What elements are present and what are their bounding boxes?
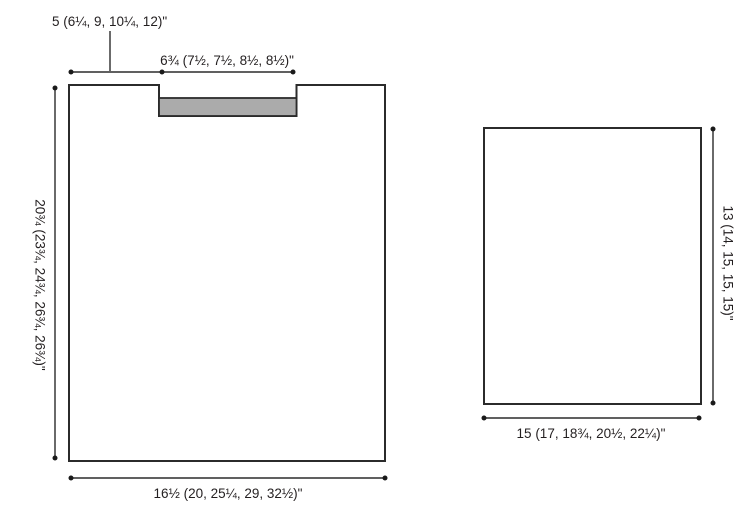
left-dim-dot-top [53, 86, 58, 91]
shoulder-width-label: 5 (6¼, 9, 10¼, 12)" [52, 14, 167, 29]
body-width-dot-right [383, 476, 388, 481]
neck-width-label: 6¾ (7½, 7½, 8½, 8½)" [160, 53, 294, 68]
left-piece-outline [69, 85, 385, 461]
sleeve-width-dot-right [697, 416, 702, 421]
neckband-bar [159, 98, 297, 116]
sleeve-length-label: 13 (14, 15, 15, 15)" [720, 205, 735, 320]
sleeve-width-label: 15 (17, 18¾, 20½, 22¼)" [517, 426, 666, 441]
left-piece: 5 (6¼, 9, 10¼, 12)" 6¾ (7½, 7½, 8½, 8½)"… [32, 14, 387, 501]
left-dim-dot-bottom [53, 456, 58, 461]
right-dim-dot-bottom [711, 401, 716, 406]
top-dim-dot-middle [160, 70, 165, 75]
pattern-schematic: 5 (6¼, 9, 10¼, 12)" 6¾ (7½, 7½, 8½, 8½)"… [0, 0, 752, 522]
body-width-dot-left [69, 476, 74, 481]
top-dim-dot-left [69, 70, 74, 75]
sleeve-width-dot-left [482, 416, 487, 421]
top-dim-dot-right [291, 70, 296, 75]
schematic-canvas: 5 (6¼, 9, 10¼, 12)" 6¾ (7½, 7½, 8½, 8½)"… [0, 0, 752, 522]
right-piece: 13 (14, 15, 15, 15)" 15 (17, 18¾, 20½, 2… [482, 127, 736, 442]
right-dim-dot-top [711, 127, 716, 132]
body-length-label: 20¾ (23¾, 24¾, 26¾, 26¾)" [32, 199, 47, 371]
right-piece-outline [484, 128, 701, 404]
body-width-label: 16½ (20, 25¼, 29, 32½)" [154, 486, 303, 501]
